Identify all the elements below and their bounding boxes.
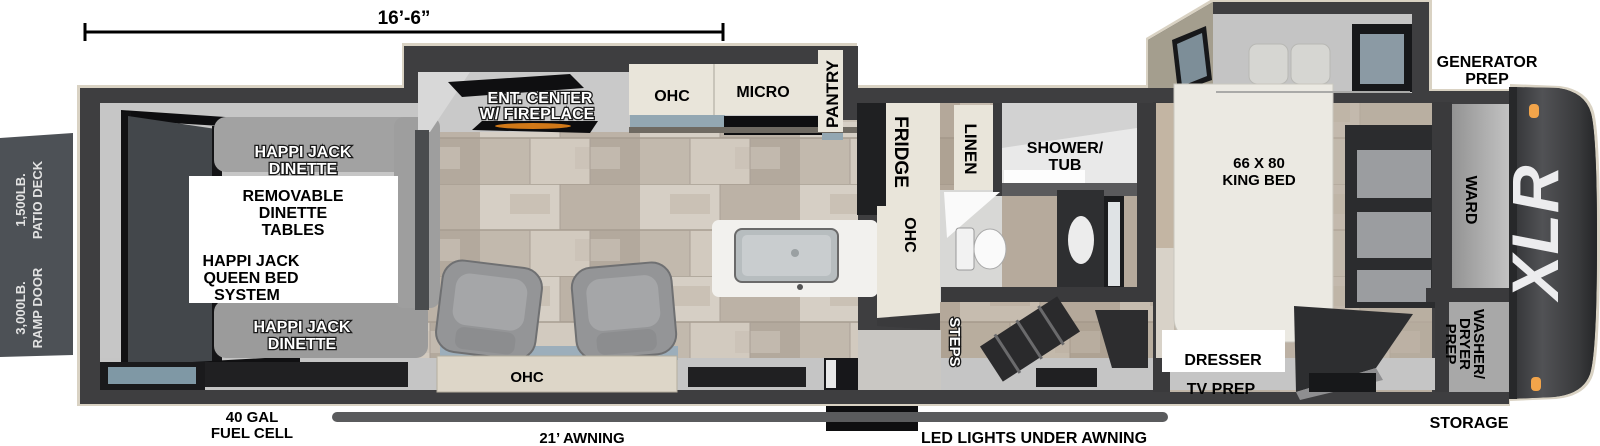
svg-text:PREP: PREP: [1465, 71, 1509, 88]
svg-text:WARD: WARD: [1462, 176, 1479, 225]
svg-text:FRIDGE: FRIDGE: [890, 116, 911, 188]
svg-text:GENERATOR: GENERATOR: [1437, 54, 1538, 71]
svg-text:LINEN: LINEN: [961, 124, 980, 175]
svg-text:SHOWER/: SHOWER/: [1027, 140, 1104, 157]
svg-text:FUEL CELL: FUEL CELL: [211, 425, 293, 442]
svg-text:DRESSER: DRESSER: [1184, 352, 1262, 369]
svg-text:ENT. CENTER: ENT. CENTER: [488, 90, 593, 107]
svg-text:XLR: XLR: [1498, 165, 1572, 304]
svg-text:HAPPI JACK: HAPPI JACK: [254, 319, 351, 336]
svg-text:LED LIGHTS UNDER AWNING: LED LIGHTS UNDER AWNING: [921, 430, 1147, 446]
svg-text:TV PREP: TV PREP: [1187, 381, 1256, 398]
svg-text:PANTRY: PANTRY: [823, 59, 842, 128]
svg-text:DINETTE: DINETTE: [259, 205, 328, 222]
svg-text:21’ AWNING: 21’ AWNING: [539, 430, 624, 446]
svg-text:TUB: TUB: [1049, 157, 1082, 174]
svg-text:3,000LB.: 3,000LB.: [13, 281, 28, 334]
svg-text:TABLES: TABLES: [262, 222, 325, 239]
svg-text:HAPPI JACK: HAPPI JACK: [255, 144, 352, 161]
svg-text:OHC: OHC: [901, 217, 918, 253]
svg-text:DINETTE: DINETTE: [268, 336, 337, 353]
svg-text:DINETTE: DINETTE: [269, 161, 338, 178]
svg-text:OHC: OHC: [510, 369, 544, 386]
svg-text:QUEEN BED: QUEEN BED: [203, 270, 298, 287]
svg-text:SYSTEM: SYSTEM: [214, 287, 280, 304]
svg-text:PATIO DECK: PATIO DECK: [30, 160, 45, 239]
svg-text:OHC: OHC: [654, 88, 690, 105]
svg-text:MICRO: MICRO: [736, 84, 789, 101]
svg-text:RAMP DOOR: RAMP DOOR: [30, 267, 45, 348]
svg-text:STEPS: STEPS: [946, 317, 963, 366]
svg-text:W/ FIREPLACE: W/ FIREPLACE: [480, 106, 595, 123]
svg-text:KING BED: KING BED: [1222, 172, 1296, 189]
svg-text:66 X 80: 66 X 80: [1233, 155, 1285, 172]
svg-text:40 GAL: 40 GAL: [226, 409, 279, 426]
svg-text:PREP: PREP: [1442, 324, 1459, 365]
svg-text:HAPPI JACK: HAPPI JACK: [203, 253, 300, 270]
svg-text:1,500LB.: 1,500LB.: [13, 173, 28, 226]
svg-text:REMOVABLE: REMOVABLE: [242, 188, 343, 205]
svg-text:STORAGE: STORAGE: [1430, 415, 1509, 432]
svg-text:16’-6”: 16’-6”: [378, 8, 431, 29]
